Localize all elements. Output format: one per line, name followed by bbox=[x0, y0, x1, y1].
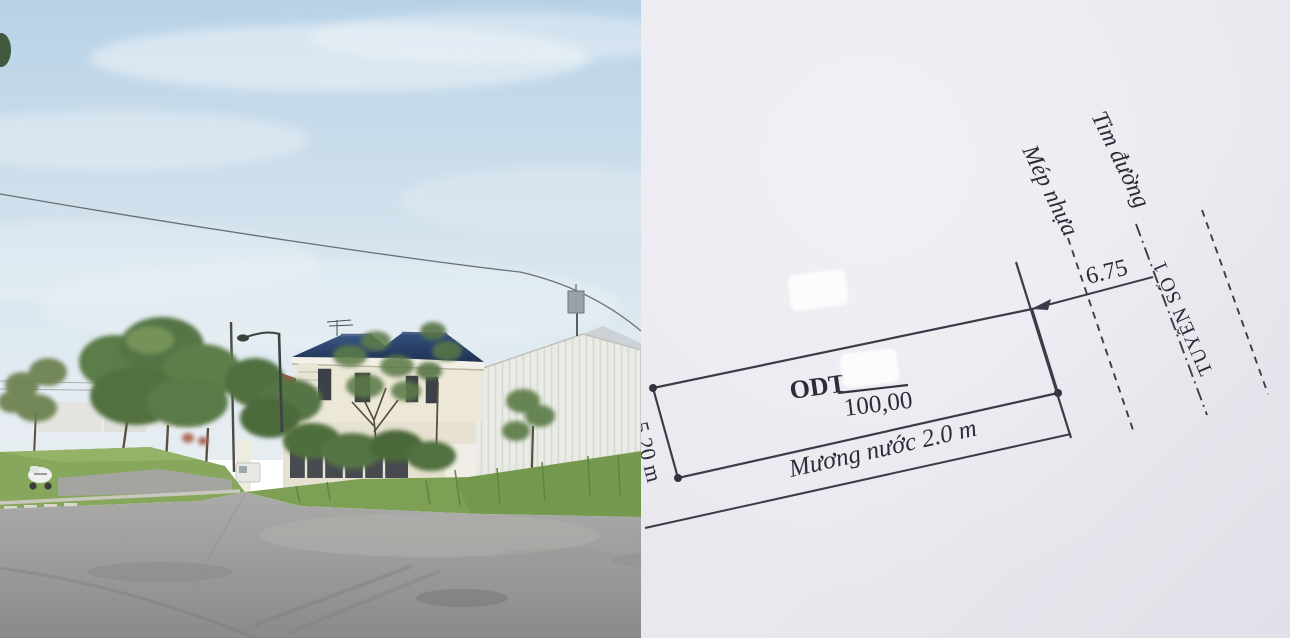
white-van bbox=[236, 463, 260, 482]
listing-composite: 6.75 Mép nhựa Tim đường TUYẾN SỐ 1 ODT 1… bbox=[0, 0, 1290, 638]
lamp-head bbox=[237, 334, 249, 341]
redaction-box-2 bbox=[839, 348, 900, 389]
corner-dot bbox=[674, 474, 682, 482]
photo-panel bbox=[0, 0, 641, 638]
corner-dot bbox=[649, 384, 657, 392]
redaction-box-1 bbox=[787, 269, 849, 312]
cadastral-sketch-panel: 6.75 Mép nhựa Tim đường TUYẾN SỐ 1 ODT 1… bbox=[641, 0, 1290, 638]
